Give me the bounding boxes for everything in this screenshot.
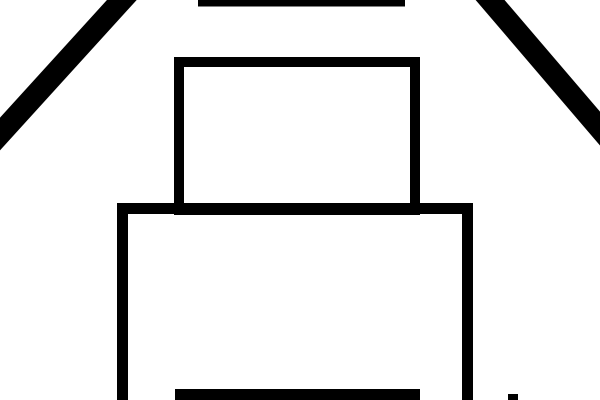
inner-bottom-bar <box>175 389 420 400</box>
lower-box-outline <box>123 209 468 400</box>
right-roof-diagonal <box>473 0 600 152</box>
magnified-icon-viewport <box>0 0 600 400</box>
bottom-right-mark <box>508 394 518 400</box>
left-roof-diagonal <box>0 0 140 156</box>
upper-box-outline <box>179 62 415 210</box>
magnified-icon-svg <box>0 0 600 400</box>
top-flat-bar <box>198 0 405 7</box>
